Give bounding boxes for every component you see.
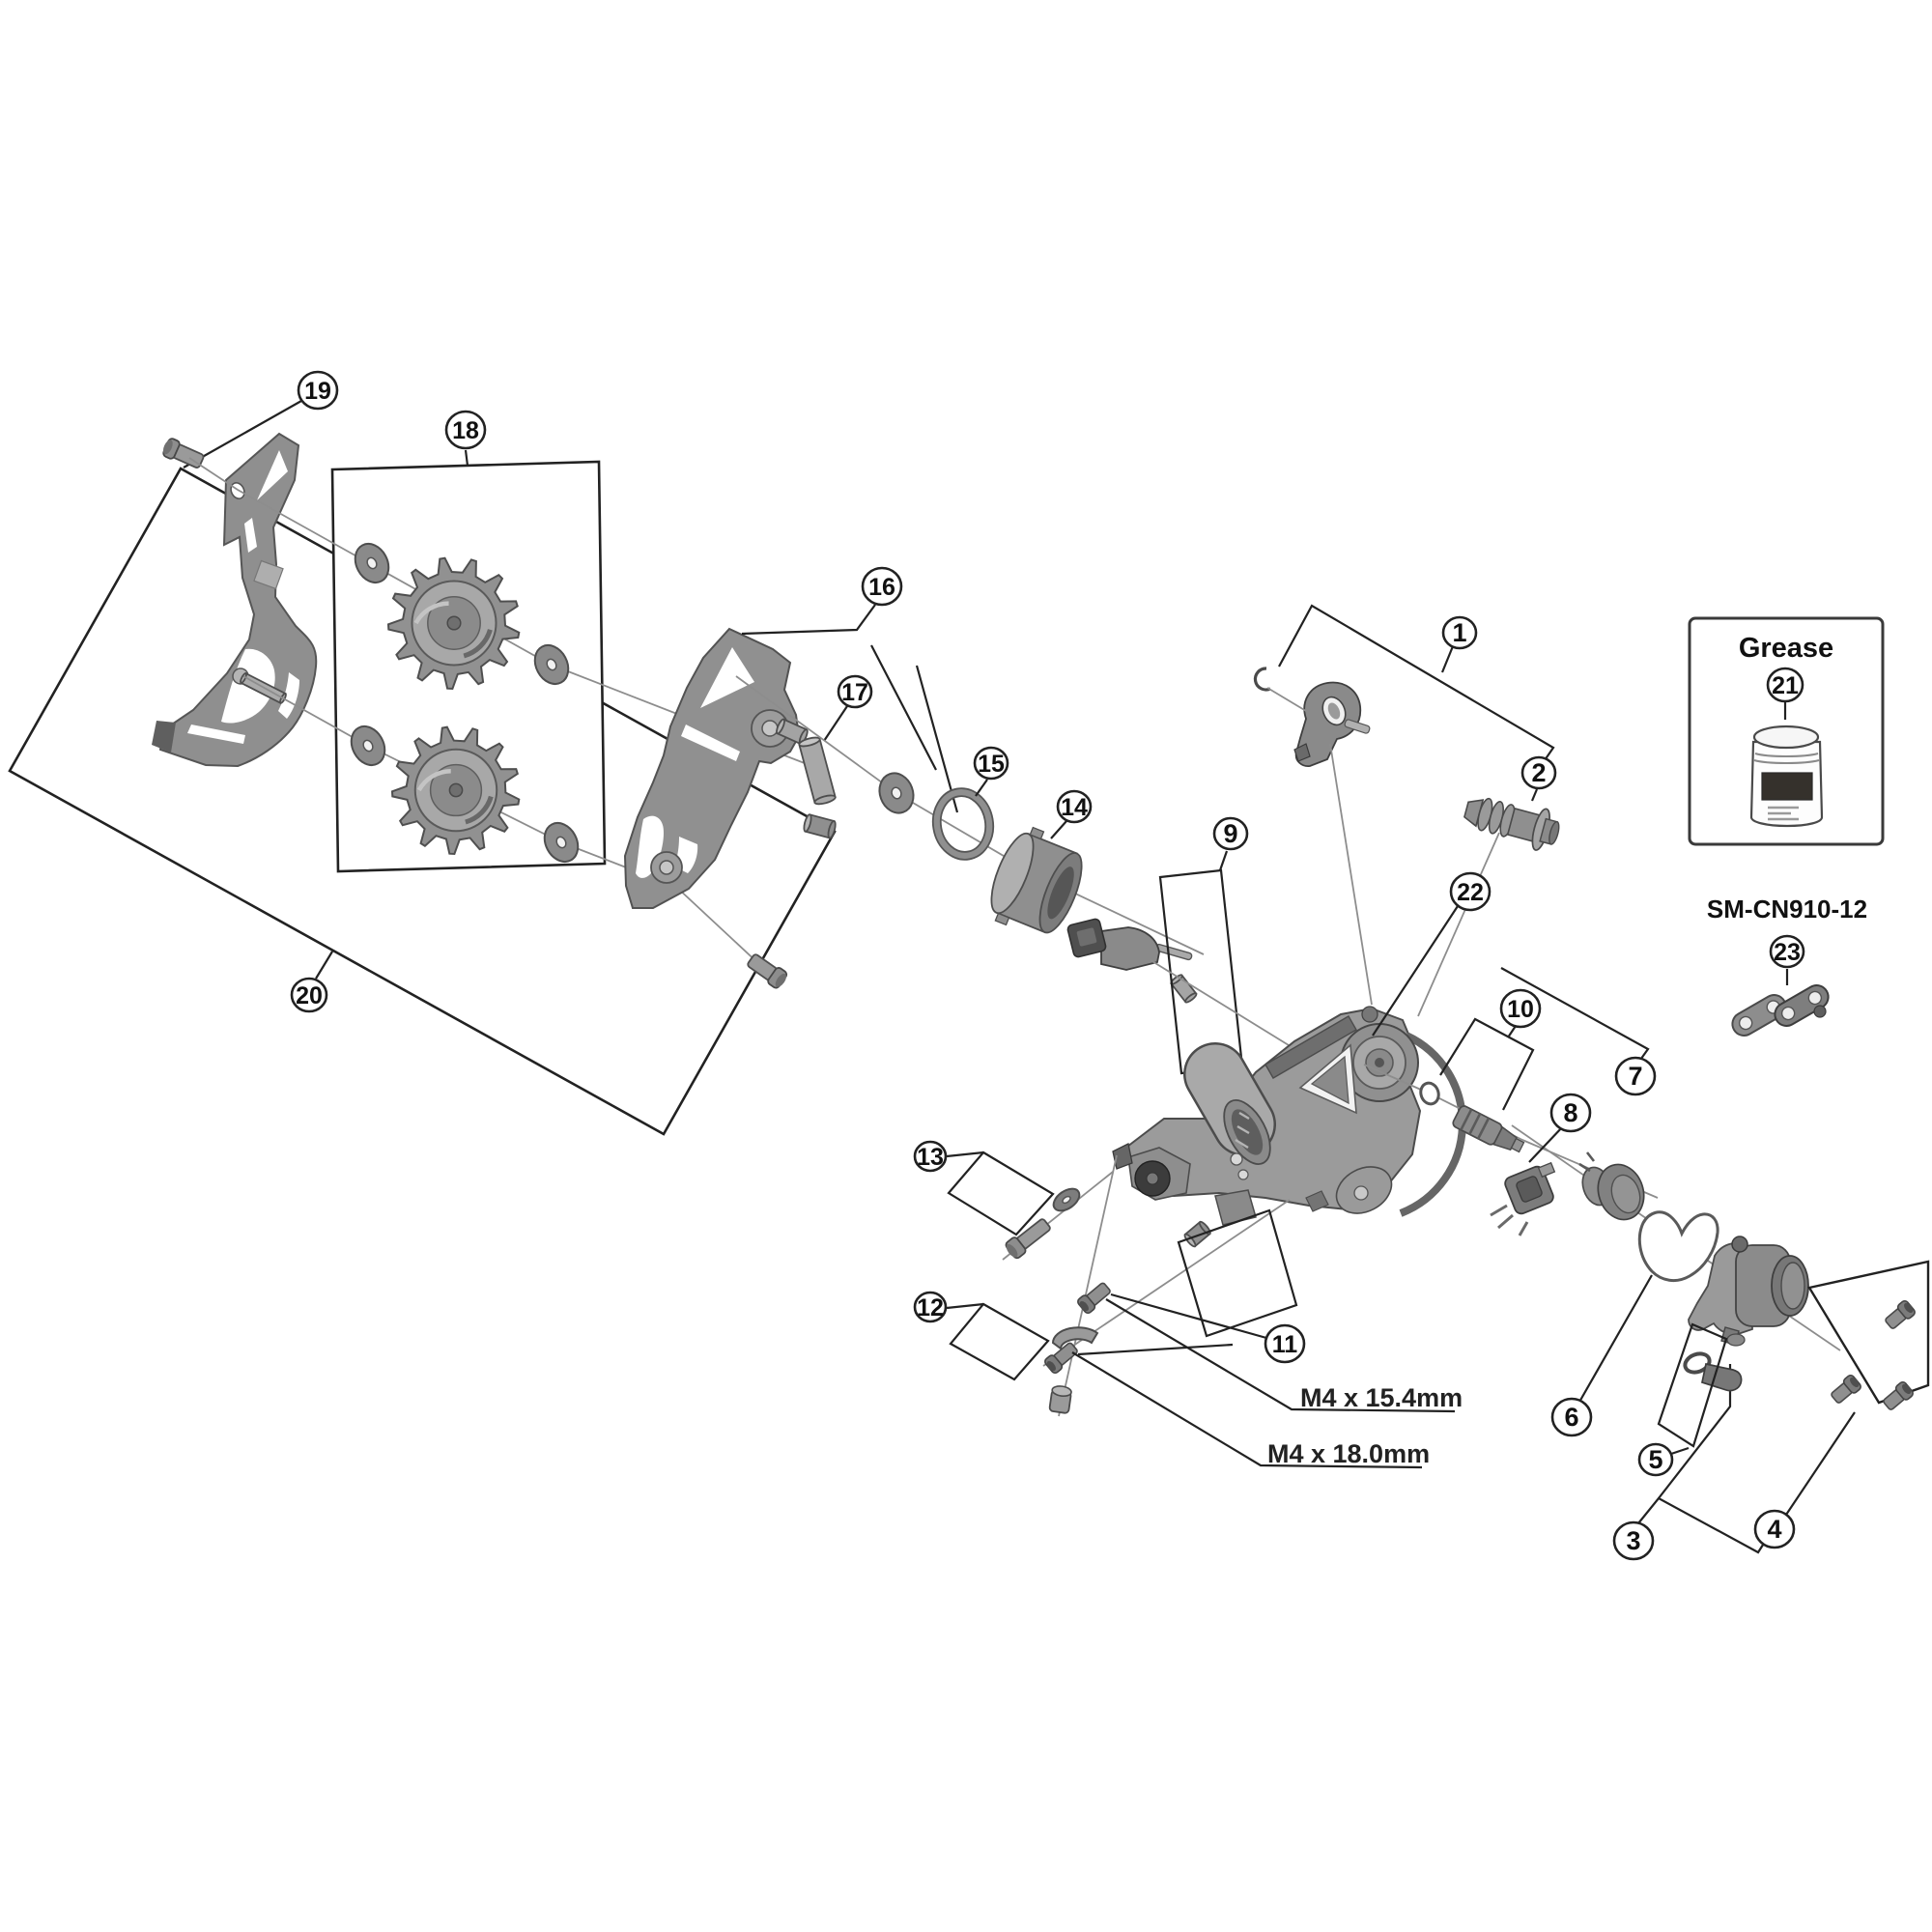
svg-text:10: 10 [1507, 996, 1534, 1023]
svg-text:12: 12 [917, 1294, 944, 1321]
svg-text:19: 19 [304, 378, 331, 405]
svg-text:20: 20 [296, 982, 323, 1009]
svg-text:SM-CN910-12: SM-CN910-12 [1707, 895, 1867, 923]
svg-text:21: 21 [1772, 672, 1799, 699]
svg-text:6: 6 [1564, 1403, 1578, 1432]
svg-text:11: 11 [1272, 1331, 1298, 1358]
svg-text:16: 16 [868, 574, 895, 601]
svg-text:23: 23 [1774, 939, 1801, 966]
svg-text:17: 17 [841, 679, 868, 706]
svg-text:3: 3 [1626, 1526, 1640, 1555]
svg-text:7: 7 [1628, 1062, 1642, 1091]
svg-text:1: 1 [1452, 618, 1466, 647]
svg-text:22: 22 [1457, 879, 1484, 906]
svg-text:9: 9 [1223, 819, 1237, 848]
svg-text:15: 15 [978, 751, 1005, 778]
svg-text:Grease: Grease [1739, 633, 1833, 664]
svg-text:8: 8 [1563, 1098, 1577, 1127]
svg-text:M4 x 15.4mm: M4 x 15.4mm [1300, 1383, 1463, 1412]
svg-text:M4 x 18.0mm: M4 x 18.0mm [1267, 1439, 1430, 1468]
svg-text:14: 14 [1061, 794, 1088, 821]
svg-text:5: 5 [1648, 1445, 1662, 1474]
svg-text:2: 2 [1531, 758, 1546, 787]
svg-text:13: 13 [917, 1144, 944, 1171]
svg-text:18: 18 [452, 417, 479, 444]
svg-text:4: 4 [1767, 1515, 1781, 1544]
